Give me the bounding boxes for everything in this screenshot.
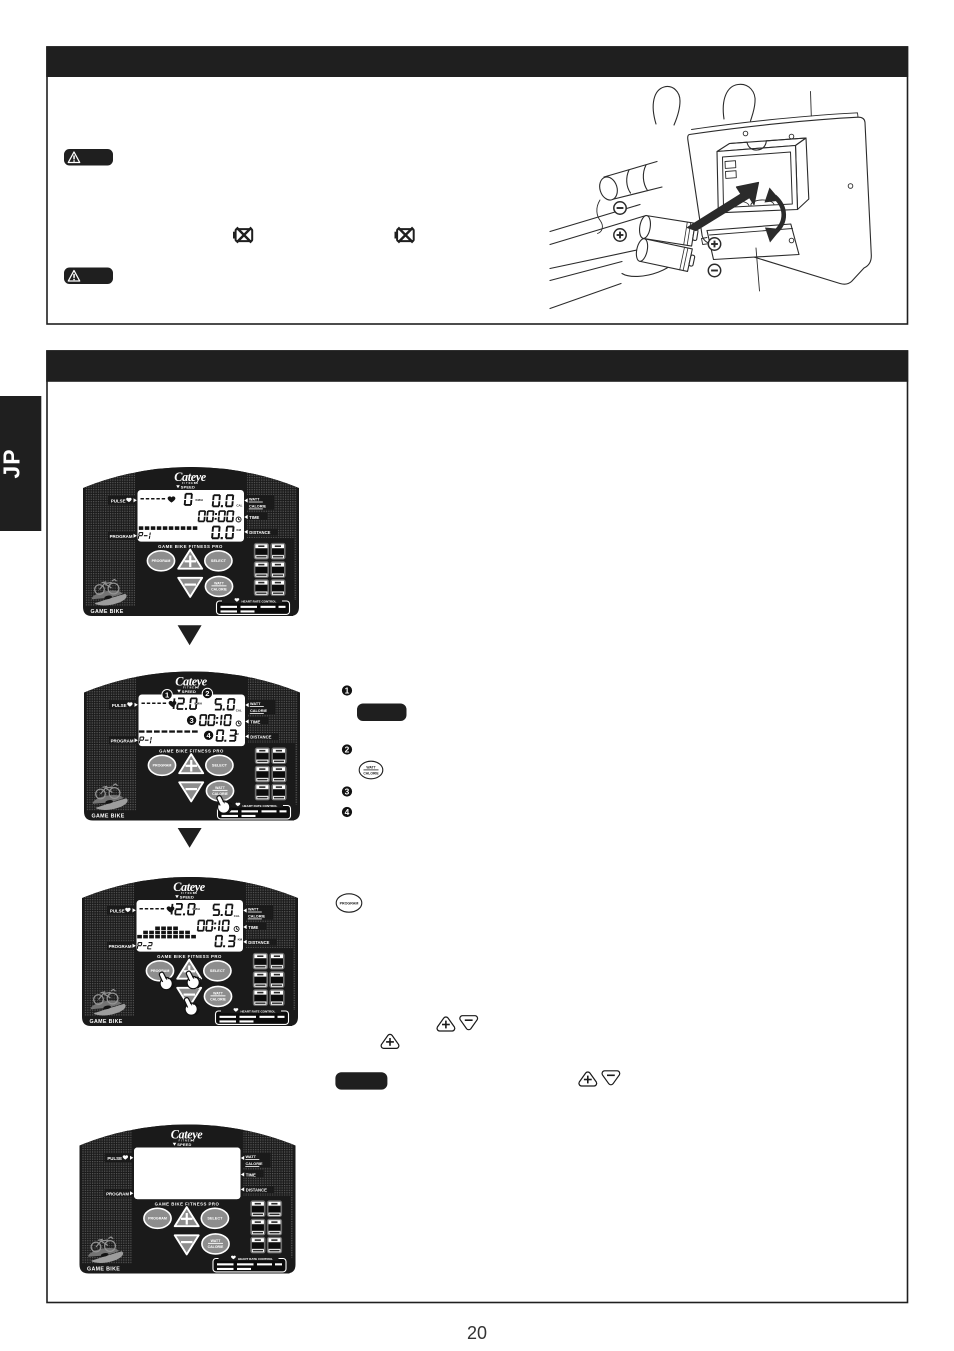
svg-text:CAL: CAL [234, 914, 240, 918]
svg-text:2: 2 [205, 689, 209, 698]
svg-text:KM: KM [237, 528, 242, 532]
svg-text:KM: KM [234, 732, 239, 736]
svg-text:KM: KM [238, 937, 243, 941]
svg-text:CAL: CAL [236, 709, 242, 713]
svg-text:1: 1 [345, 686, 350, 696]
svg-text:PROGRAM: PROGRAM [340, 902, 359, 906]
svg-text:3: 3 [189, 716, 193, 725]
svg-text:KM/H: KM/H [195, 702, 202, 706]
svg-text:3: 3 [345, 787, 350, 797]
svg-text:KM/H: KM/H [196, 498, 203, 502]
svg-text:2: 2 [345, 745, 350, 755]
svg-text:4: 4 [345, 807, 350, 817]
svg-text:WATT: WATT [366, 766, 376, 770]
svg-text:CALORIE: CALORIE [363, 771, 379, 775]
svg-text:KM/H: KM/H [193, 907, 200, 911]
svg-text:JP: JP [0, 448, 25, 478]
svg-text:CAL: CAL [236, 504, 242, 508]
svg-text:20: 20 [467, 1323, 487, 1343]
